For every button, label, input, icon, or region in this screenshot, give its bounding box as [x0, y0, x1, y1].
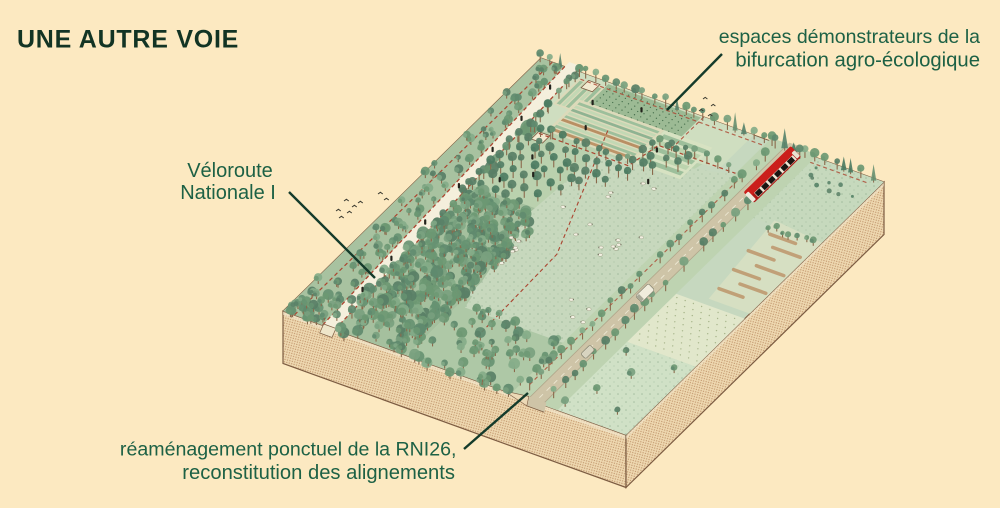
svg-text:reconstitution des alignements: reconstitution des alignements [182, 462, 455, 484]
svg-text:bifurcation agro-écologique: bifurcation agro-écologique [735, 50, 980, 72]
svg-text:Véloroute: Véloroute [187, 160, 273, 182]
svg-text:UNE AUTRE VOIE: UNE AUTRE VOIE [17, 26, 239, 54]
svg-text:Nationale I: Nationale I [180, 182, 276, 204]
svg-text:espaces démonstrateurs de la: espaces démonstrateurs de la [719, 26, 980, 48]
svg-text:réaménagement ponctuel de la R: réaménagement ponctuel de la RNI26, [120, 439, 457, 461]
